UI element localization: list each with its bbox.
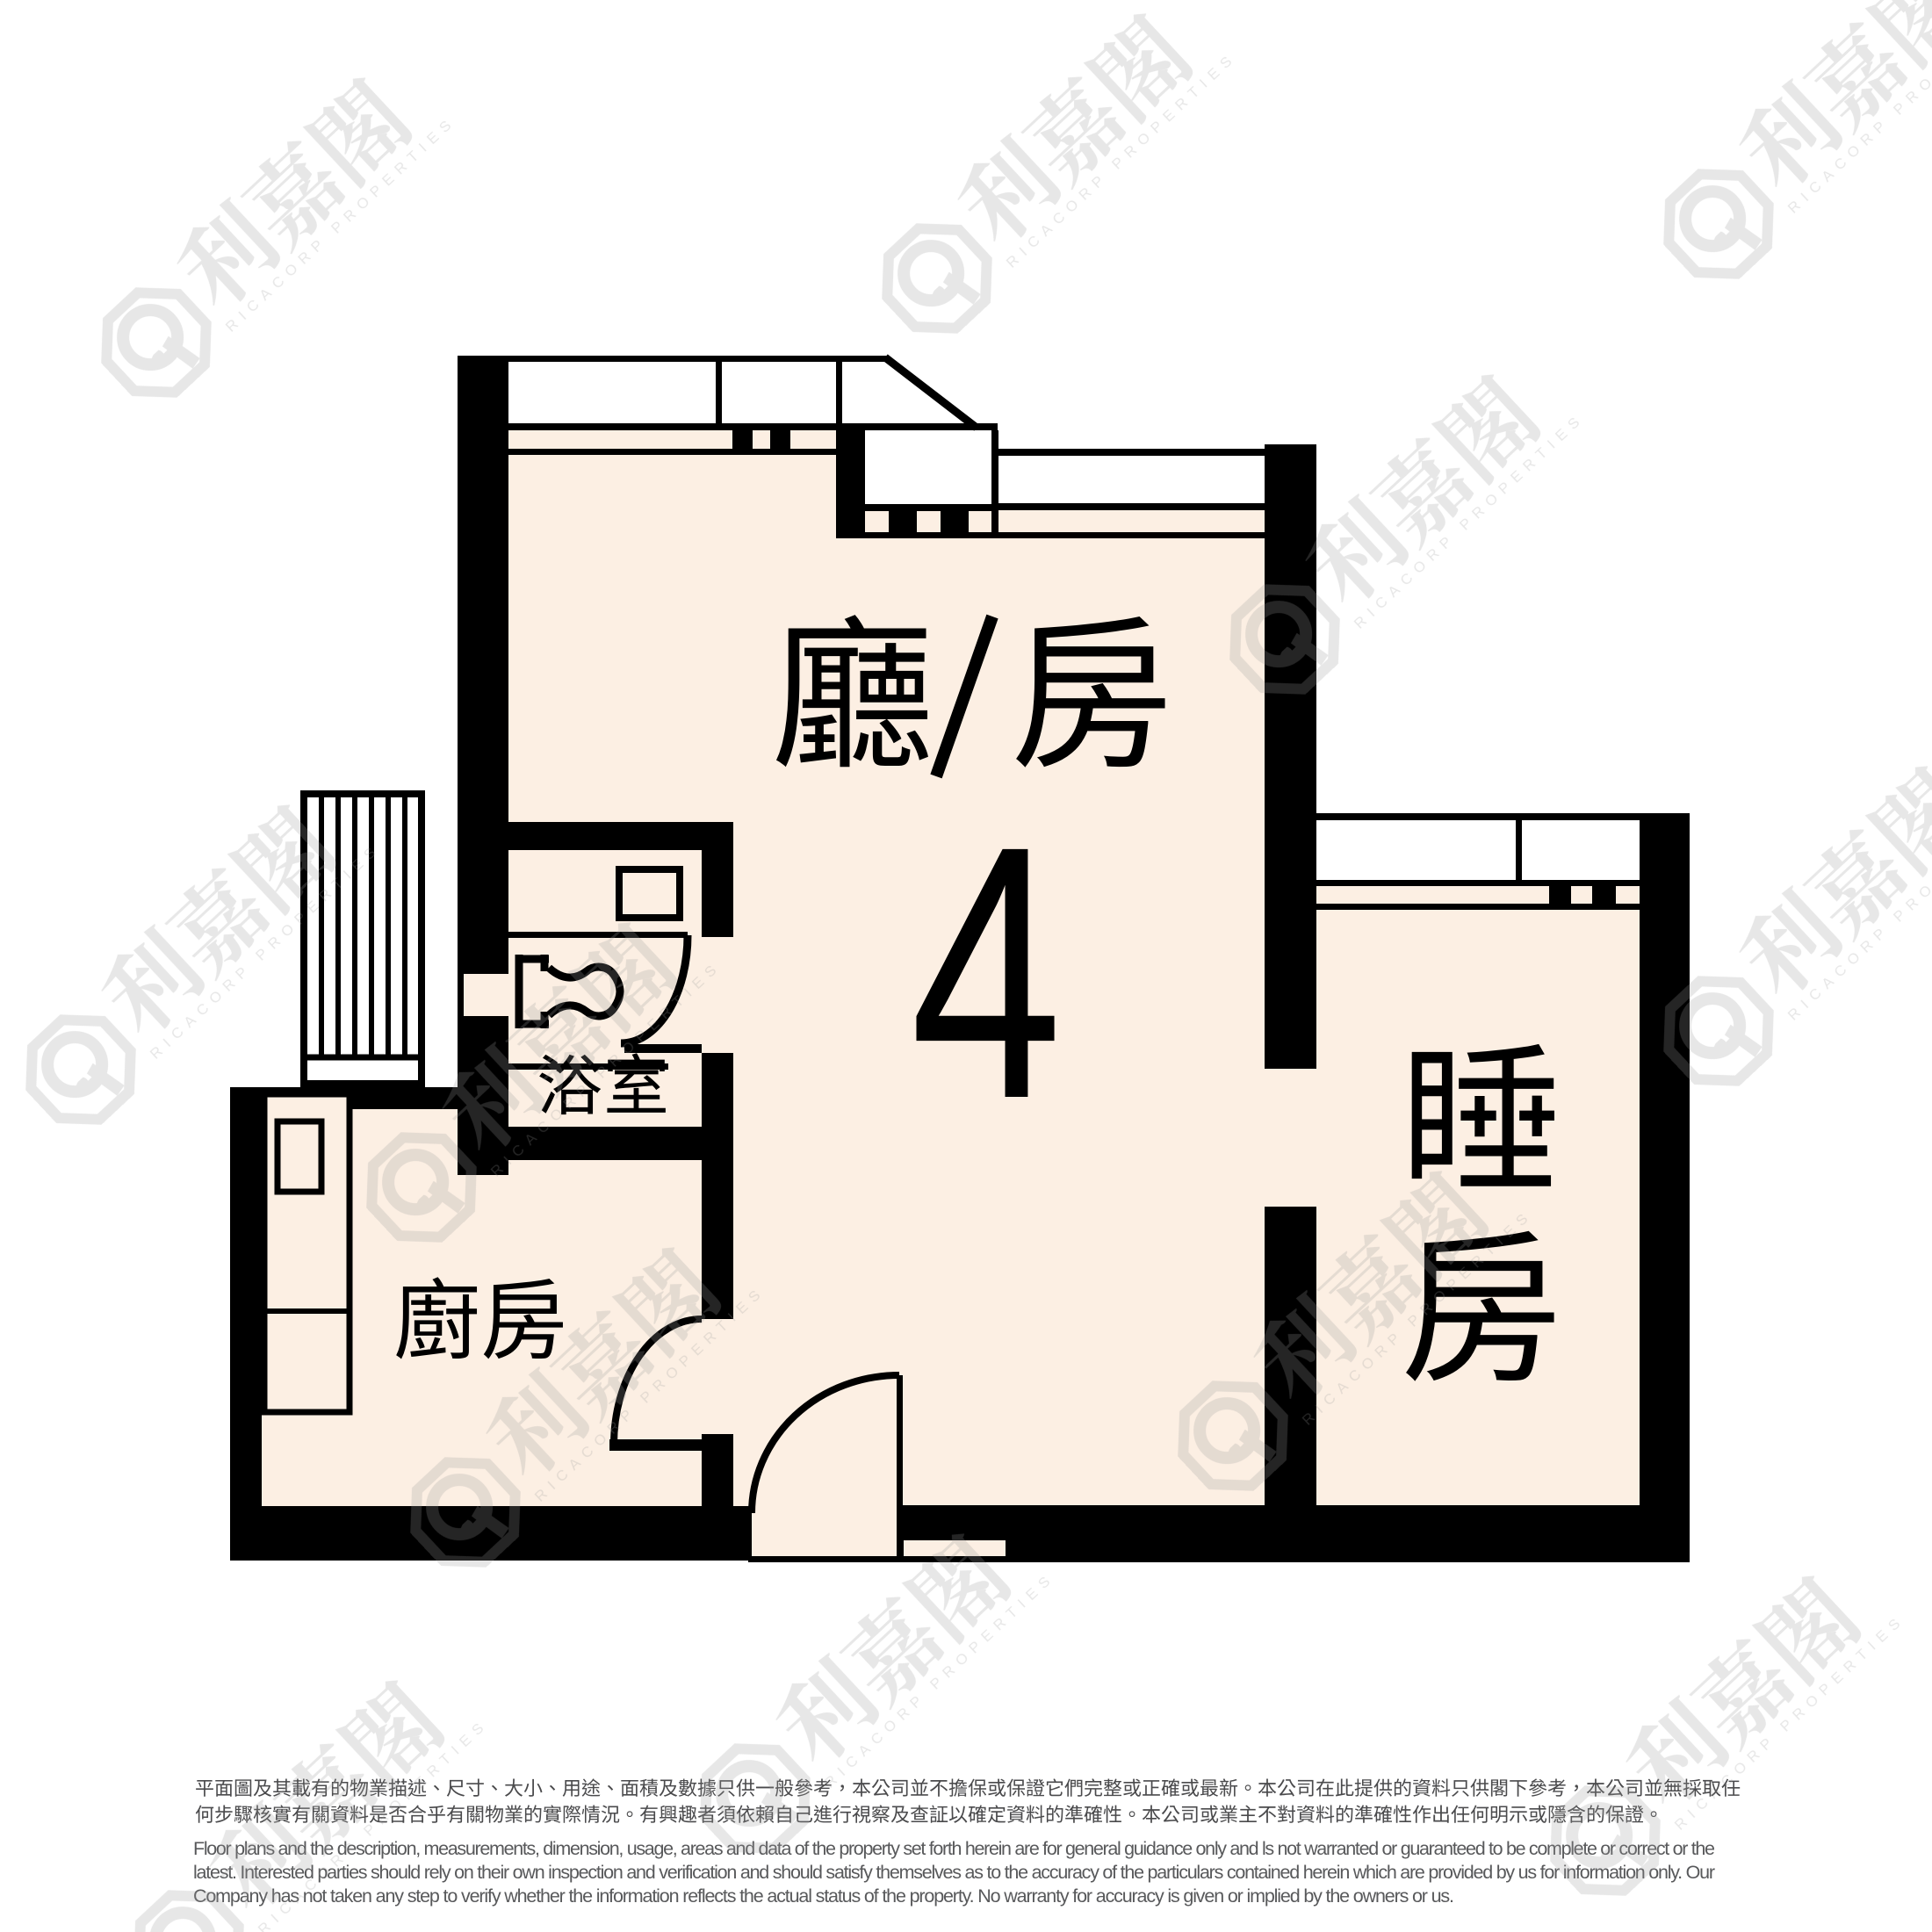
svg-text:4: 4: [910, 772, 1062, 1174]
svg-text:Floor plans and the descriptio: Floor plans and the description, measure…: [193, 1838, 1715, 1859]
svg-text:latest. Interested parties sho: latest. Interested parties should rely o…: [193, 1862, 1715, 1883]
svg-text:Company has not taken any step: Company has not taken any step to verify…: [193, 1885, 1454, 1907]
